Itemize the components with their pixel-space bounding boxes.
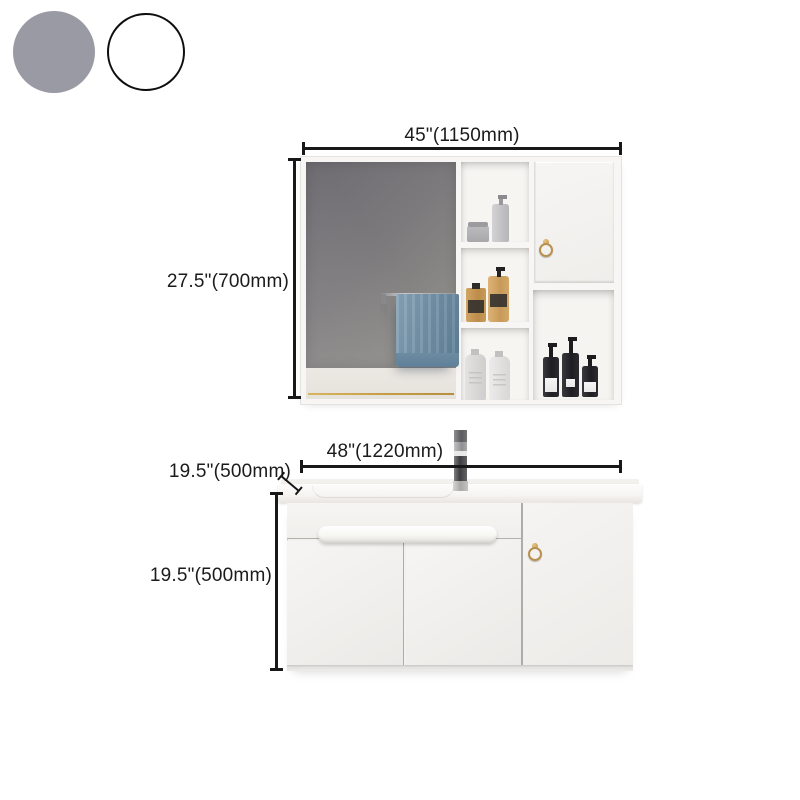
sink-basin [312, 486, 454, 498]
pump-bottle [492, 204, 509, 242]
vanity-height-dimension-label: 19.5"(500mm) [139, 565, 272, 587]
bottle-label [566, 379, 575, 387]
open-shelf-bottom [461, 328, 529, 400]
mirror-height-dimension-line [293, 158, 296, 399]
mirror-width-dimension-line [302, 147, 622, 150]
bottle-label [490, 294, 507, 307]
bottle-label [468, 300, 484, 313]
handle-ring [528, 547, 542, 561]
black-pump-bottle [562, 353, 579, 397]
vanity-width-dimension-line [300, 465, 622, 468]
mirror-cabinet [300, 156, 622, 405]
white-bottle [489, 356, 510, 400]
vanity-door-left [287, 541, 404, 666]
bottle-label [584, 382, 596, 392]
vanity-bottom-edge [287, 665, 633, 671]
vanity-depth-dimension-label: 19.5"(500mm) [158, 461, 291, 483]
bottle-label [493, 374, 506, 389]
vanity-door-right [523, 503, 634, 665]
gold-trim-line [308, 393, 454, 396]
vanity-cabinet [287, 503, 633, 671]
open-shelf-middle [461, 248, 529, 322]
bottle-pump [588, 355, 592, 366]
vanity-width-dimension-label: 48"(1220mm) [302, 441, 468, 463]
cosmetic-jar [467, 226, 489, 242]
white-bottle [465, 354, 486, 400]
vanity-door-middle [406, 541, 522, 666]
bottle-pump [497, 267, 501, 277]
mirror-apron-panel [306, 368, 456, 399]
color-swatch-white[interactable] [107, 13, 185, 91]
gold-ring-handle [527, 543, 543, 563]
bottle-label [545, 378, 557, 392]
black-pump-bottle [543, 357, 559, 397]
mirror-height-dimension-label: 27.5"(700mm) [148, 271, 289, 293]
product-dimension-image: 45"(1150mm) 27.5"(700mm) [0, 0, 800, 800]
towel-fold [396, 353, 459, 367]
bottle-pump [549, 343, 553, 357]
amber-pump-bottle [488, 276, 509, 322]
faucet-base [453, 481, 468, 491]
gold-ring-handle [538, 239, 554, 259]
bottle-cap [472, 283, 480, 289]
mirror [306, 162, 456, 368]
bottle-pump [499, 195, 503, 205]
mirror-cabinet-door [534, 162, 614, 283]
amber-bottle [466, 288, 486, 322]
bottle-pump [569, 337, 573, 353]
color-swatch-gray[interactable] [13, 11, 95, 93]
handle-ring [539, 243, 553, 257]
recessed-pull-groove [318, 526, 497, 543]
bottle-cap [471, 349, 479, 355]
vanity-height-dimension-line [275, 492, 278, 671]
bottle-label [469, 372, 482, 387]
mirror-width-dimension-label: 45"(1150mm) [302, 125, 622, 147]
towel-bar-bracket [381, 294, 386, 304]
open-shelf-top [461, 162, 529, 242]
towel [396, 294, 459, 367]
open-niche [533, 290, 614, 400]
bottle-cap [495, 351, 503, 357]
black-pump-bottle [582, 366, 598, 397]
